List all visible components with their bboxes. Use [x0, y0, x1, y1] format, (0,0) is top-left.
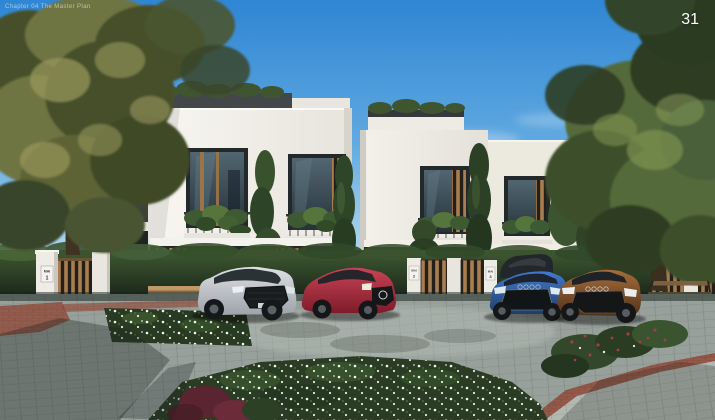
headlight [232, 286, 244, 293]
wood-fence-rail [58, 258, 92, 261]
headlight [562, 287, 575, 294]
unit-sign-1-number: 1 [46, 276, 49, 282]
chapter-watermark: Chapter 04 The Master Plan [5, 4, 91, 10]
rendering-canvas: MAI 1 MAI 2 MAI 3 [0, 0, 715, 420]
scene-artwork: MAI 1 MAI 2 MAI 3 [0, 0, 715, 420]
page-number: 31 [681, 11, 699, 29]
unit-sign-3-name: MAI [488, 270, 494, 274]
unit-sign-2-name: MAI [411, 269, 417, 273]
headlight [362, 283, 372, 290]
unit-sign-1-name: MAI [44, 270, 51, 274]
